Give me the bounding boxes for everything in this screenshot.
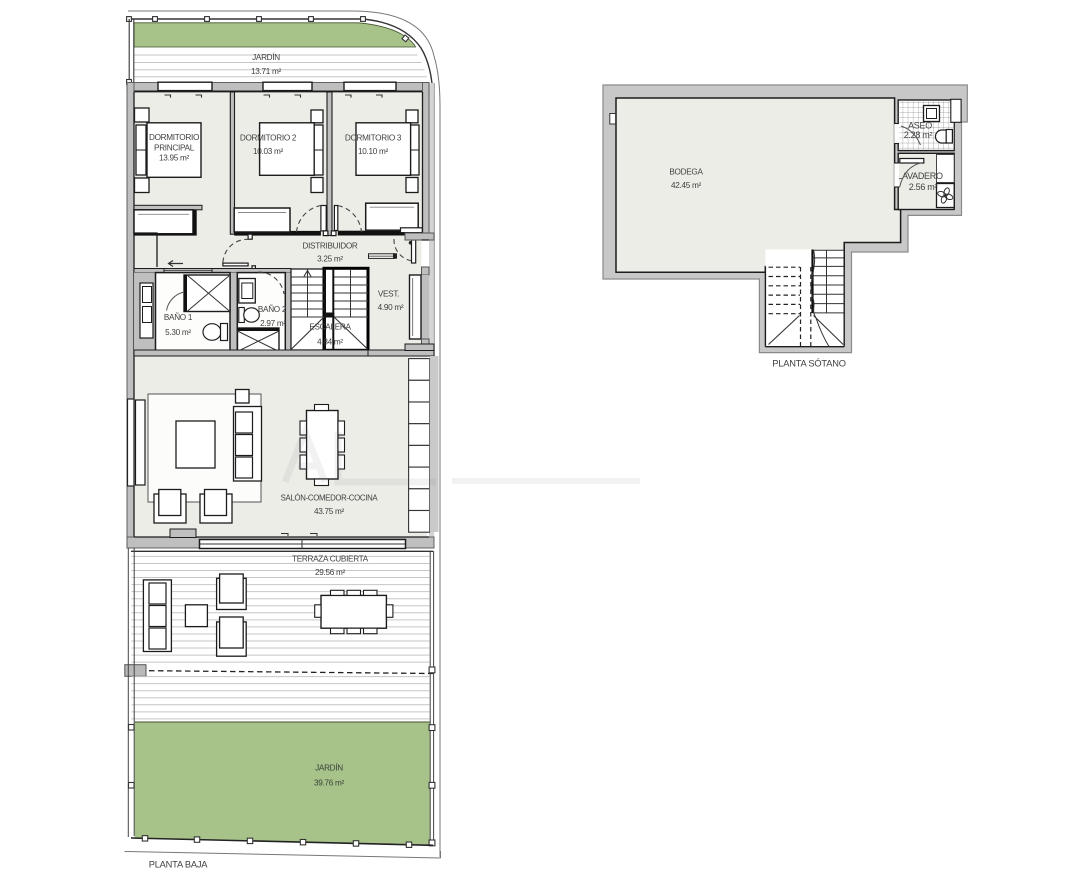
svg-text:SALÓN-COMEDOR-COCINA: SALÓN-COMEDOR-COCINA xyxy=(281,494,379,503)
svg-text:PLANTA SÓTANO: PLANTA SÓTANO xyxy=(772,359,846,369)
svg-text:DORMITORIO 3: DORMITORIO 3 xyxy=(345,134,402,143)
svg-text:2.97 m²: 2.97 m² xyxy=(260,319,286,328)
svg-text:VEST.: VEST. xyxy=(378,290,399,299)
svg-text:4.90 m²: 4.90 m² xyxy=(378,303,404,312)
svg-text:13.71 m²: 13.71 m² xyxy=(251,67,281,76)
svg-text:DORMITORIO: DORMITORIO xyxy=(149,133,199,142)
svg-text:5.30 m²: 5.30 m² xyxy=(165,328,191,337)
svg-text:2.28 m²: 2.28 m² xyxy=(904,130,933,140)
svg-text:39.76 m²: 39.76 m² xyxy=(314,778,344,787)
svg-text:4.84 m²: 4.84 m² xyxy=(317,337,343,346)
svg-text:BAÑO 1: BAÑO 1 xyxy=(164,312,193,322)
svg-text:29.56 m²: 29.56 m² xyxy=(315,568,345,577)
svg-text:13.95 m²: 13.95 m² xyxy=(159,154,189,163)
svg-text:JARDÍN: JARDÍN xyxy=(252,52,280,62)
svg-text:42.45 m²: 42.45 m² xyxy=(671,181,701,190)
svg-text:ESCALERA: ESCALERA xyxy=(309,323,351,332)
svg-text:JARDÍN: JARDÍN xyxy=(315,762,343,772)
svg-text:10.03 m²: 10.03 m² xyxy=(253,147,283,156)
svg-text:2.56 m²: 2.56 m² xyxy=(909,182,938,192)
svg-text:43.75 m²: 43.75 m² xyxy=(314,507,344,516)
svg-text:DORMITORIO 2: DORMITORIO 2 xyxy=(240,134,297,143)
svg-text:PRINCIPAL: PRINCIPAL xyxy=(154,143,195,152)
svg-text:10.10 m²: 10.10 m² xyxy=(358,147,388,156)
svg-text:3.25 m²: 3.25 m² xyxy=(317,254,343,263)
svg-text:TERRAZA CUBIERTA: TERRAZA CUBIERTA xyxy=(292,555,369,564)
svg-text:BODEGA: BODEGA xyxy=(669,168,703,177)
svg-text:DISTRIBUIDOR: DISTRIBUIDOR xyxy=(302,242,357,251)
svg-text:BAÑO 2: BAÑO 2 xyxy=(258,304,287,314)
svg-text:PLANTA BAJA: PLANTA BAJA xyxy=(149,860,209,870)
